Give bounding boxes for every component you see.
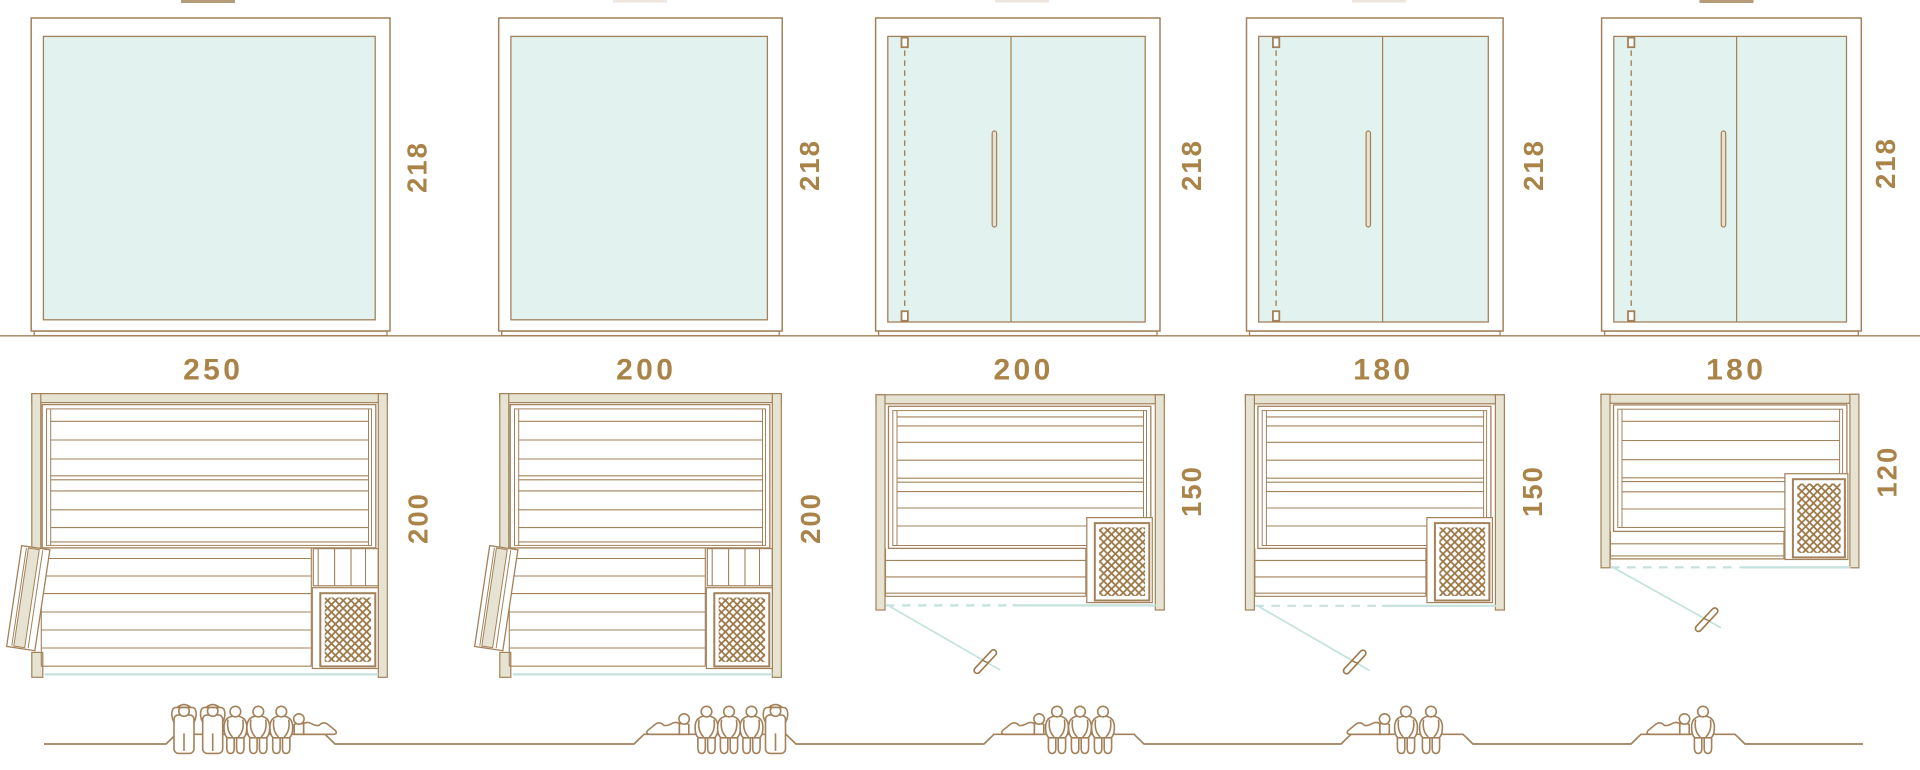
svg-text:180: 180 <box>1353 354 1413 387</box>
svg-text:218: 218 <box>1518 139 1549 191</box>
svg-text:120: 120 <box>1871 446 1902 498</box>
svg-text:218: 218 <box>794 139 825 191</box>
svg-text:218: 218 <box>1176 139 1207 191</box>
svg-text:200: 200 <box>795 492 826 544</box>
svg-text:218: 218 <box>402 141 433 193</box>
svg-text:200: 200 <box>616 354 676 387</box>
svg-text:200: 200 <box>403 492 434 544</box>
svg-text:218: 218 <box>1870 137 1901 189</box>
svg-text:150: 150 <box>1176 465 1207 517</box>
svg-text:180: 180 <box>1706 354 1766 387</box>
svg-text:200: 200 <box>993 354 1053 387</box>
svg-text:250: 250 <box>183 354 243 387</box>
svg-text:150: 150 <box>1517 465 1548 517</box>
